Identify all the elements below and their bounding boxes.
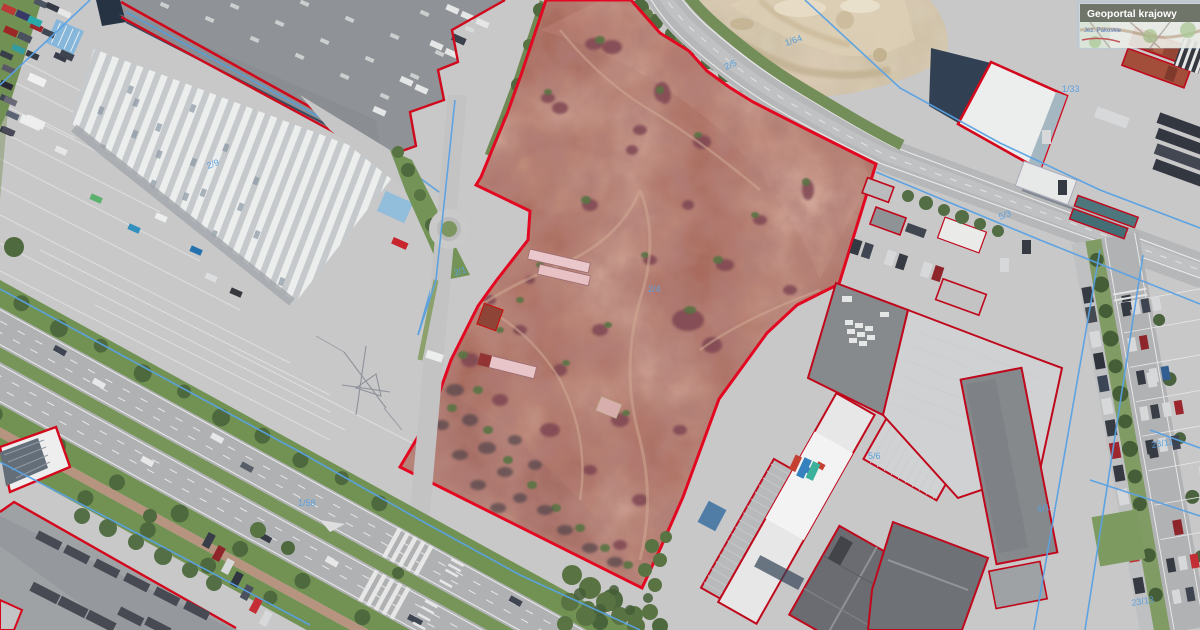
svg-text:Geoportal krajowy: Geoportal krajowy (1087, 9, 1177, 20)
svg-text:Jez. Pakoskie: Jez. Pakoskie (1084, 28, 1122, 34)
